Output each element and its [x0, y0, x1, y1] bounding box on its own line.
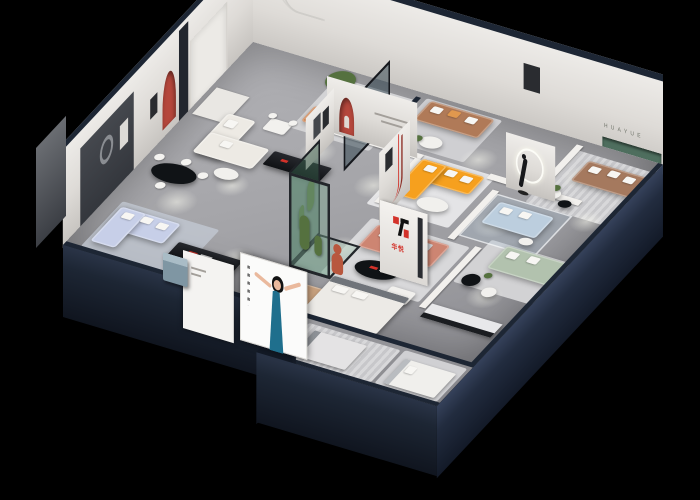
terrarium-plant — [314, 235, 321, 257]
red-arch-niche — [163, 64, 176, 130]
logo-badge-red — [369, 266, 378, 270]
niche-figurine — [344, 115, 349, 128]
woman-arm-right — [284, 282, 302, 291]
showroom-isometric-render: HUAYUE — [0, 0, 700, 500]
side-table-white — [262, 118, 294, 135]
presentation-panel-white — [183, 250, 234, 343]
wall-art-frame — [524, 63, 540, 94]
statue-head — [522, 153, 526, 159]
dining-chair — [152, 153, 167, 162]
dining-table-black-oval — [145, 159, 203, 188]
dining-chair — [196, 171, 211, 180]
logo-pillar: 华悦 — [380, 200, 428, 286]
sideboard — [420, 303, 503, 337]
logo-badge-red — [280, 159, 289, 163]
bear-sculpture — [330, 242, 345, 276]
panel-marking — [191, 266, 206, 272]
logo-hanzi: 华悦 — [391, 241, 416, 258]
terrarium-front-glass — [289, 172, 330, 279]
curved-wall-decor-lines — [283, 0, 324, 21]
runner-statue — [517, 152, 529, 198]
woman-arm-left — [254, 271, 272, 288]
dining-chair — [153, 181, 168, 190]
sectional-sofa-cream — [192, 132, 270, 169]
terrarium-plant — [300, 214, 310, 251]
logo-red-square — [393, 216, 399, 225]
wall-art-frame — [323, 105, 329, 130]
doorway-gap — [179, 21, 188, 124]
poster-vertical-text-marks — [247, 265, 249, 306]
logo-mark-h — [393, 216, 409, 241]
bear-body — [332, 251, 343, 275]
woman-dress — [265, 288, 288, 356]
wall-art-frame — [150, 92, 157, 120]
logo-red-block — [404, 229, 409, 238]
statue-body — [519, 158, 528, 188]
exterior-wall-edge — [36, 116, 66, 248]
panel-marking — [191, 272, 201, 277]
wall-art-frame — [313, 112, 320, 140]
desk-chair — [267, 112, 279, 119]
pillar-shelf-dark — [418, 217, 423, 278]
